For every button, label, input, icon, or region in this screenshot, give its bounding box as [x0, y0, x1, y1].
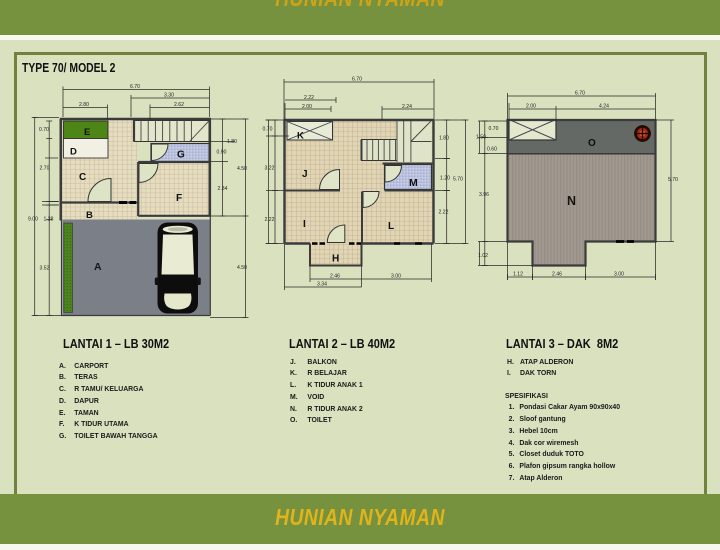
svg-text:4.50: 4.50	[237, 166, 247, 172]
svg-text:2.34: 2.34	[218, 186, 228, 192]
svg-text:2.46: 2.46	[330, 274, 340, 280]
svg-text:2.46: 2.46	[552, 272, 562, 278]
svg-text:0.70: 0.70	[489, 126, 499, 132]
svg-text:F: F	[176, 193, 182, 204]
svg-text:3.34: 3.34	[317, 282, 327, 288]
svg-text:2.22: 2.22	[304, 95, 314, 101]
svg-text:9.00: 9.00	[28, 217, 38, 223]
svg-text:2.22: 2.22	[439, 210, 449, 216]
svg-text:2.62: 2.62	[174, 102, 184, 108]
svg-text:4.50: 4.50	[237, 265, 247, 271]
svg-text:H: H	[332, 254, 339, 265]
svg-text:0.90: 0.90	[217, 150, 227, 156]
svg-text:G: G	[177, 150, 185, 161]
svg-text:E: E	[84, 127, 90, 138]
svg-text:3.96: 3.96	[479, 192, 489, 198]
svg-text:1.80: 1.80	[227, 139, 237, 145]
svg-text:M: M	[409, 177, 418, 189]
svg-text:C: C	[79, 172, 86, 183]
svg-text:6.70: 6.70	[352, 77, 362, 83]
svg-text:3.30: 3.30	[164, 93, 174, 99]
svg-text:D: D	[70, 147, 77, 158]
svg-text:1.28: 1.28	[44, 217, 54, 223]
svg-text:1.12: 1.12	[513, 272, 523, 278]
svg-text:2.00: 2.00	[526, 104, 536, 110]
svg-text:3.22: 3.22	[265, 166, 275, 172]
svg-text:2.70: 2.70	[40, 166, 50, 172]
svg-text:1.20: 1.20	[440, 176, 450, 182]
svg-text:1.80: 1.80	[439, 136, 449, 142]
svg-text:2.24: 2.24	[402, 104, 412, 110]
svg-text:N: N	[567, 194, 576, 208]
svg-text:K: K	[297, 131, 304, 142]
svg-text:3.00: 3.00	[391, 274, 401, 280]
svg-text:A: A	[94, 261, 102, 273]
svg-text:5.70: 5.70	[668, 177, 678, 183]
svg-text:0.70: 0.70	[39, 127, 49, 133]
svg-text:6.70: 6.70	[130, 84, 140, 90]
svg-text:2.22: 2.22	[265, 217, 275, 223]
svg-text:6.70: 6.70	[575, 91, 585, 97]
svg-text:0.70: 0.70	[263, 127, 273, 133]
svg-text:0.60: 0.60	[487, 147, 497, 153]
svg-text:2.80: 2.80	[79, 102, 89, 108]
svg-text:3.00: 3.00	[614, 272, 624, 278]
svg-text:1.50: 1.50	[476, 135, 486, 141]
svg-text:L: L	[388, 221, 394, 232]
svg-text:5.70: 5.70	[453, 177, 463, 183]
svg-text:I: I	[303, 219, 306, 230]
svg-text:B: B	[86, 210, 93, 221]
svg-text:3.52: 3.52	[40, 266, 50, 272]
svg-text:O: O	[588, 138, 596, 149]
svg-text:J: J	[302, 169, 308, 180]
svg-text:4.24: 4.24	[599, 104, 609, 110]
svg-text:1.02: 1.02	[478, 253, 488, 259]
svg-text:2.00: 2.00	[302, 104, 312, 110]
